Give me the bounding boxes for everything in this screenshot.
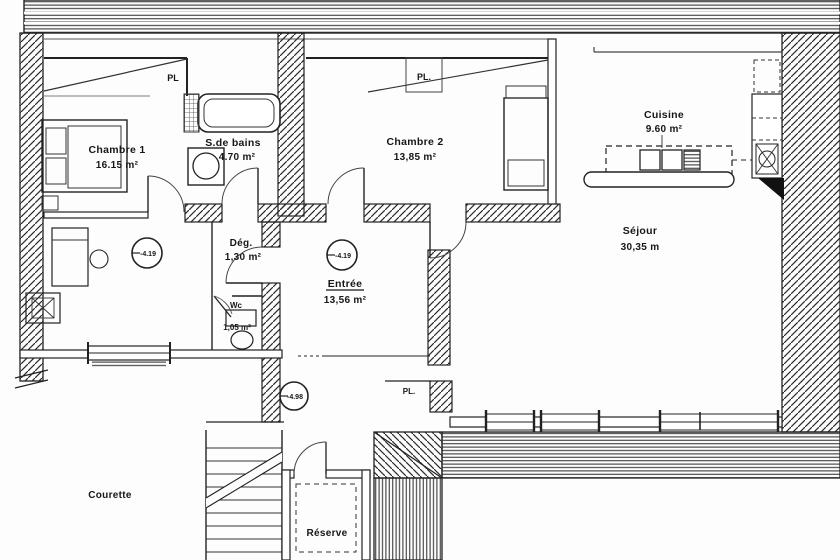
bottom-wall-band bbox=[374, 432, 840, 560]
closet-rod-line bbox=[44, 59, 187, 91]
door-chambre2 bbox=[328, 168, 364, 204]
wall-entree-sejour-stub bbox=[428, 250, 450, 365]
door-swing bbox=[328, 168, 364, 204]
room-chambre1: PL Chambre 1 16.15 m² bbox=[42, 58, 187, 212]
chambre2-area: 13,85 m² bbox=[394, 152, 437, 163]
cuisine-area: 9.60 m² bbox=[646, 124, 683, 135]
closet-chambre1: PL bbox=[44, 58, 187, 96]
wall-south-bedrooms bbox=[466, 204, 560, 222]
entree-area: 13,56 m² bbox=[324, 295, 367, 306]
kitchen-cupboard-column bbox=[752, 60, 782, 178]
room-degagement: Dég. 1,30 m² bbox=[225, 238, 262, 283]
area-courette: Courette bbox=[88, 490, 132, 501]
closet-rod-line bbox=[368, 60, 548, 92]
closet-chambre1-label: PL bbox=[167, 73, 179, 83]
closet-chambre2: PL. bbox=[306, 58, 548, 92]
level-value: -4.19 bbox=[140, 251, 156, 258]
floor-plan-svg: PL Chambre 1 16.15 m² S.de bbox=[0, 0, 840, 560]
kitchen-counter bbox=[584, 146, 754, 187]
door-sdb bbox=[222, 168, 258, 204]
door-swing bbox=[222, 168, 258, 204]
level-value: -4.19 bbox=[335, 253, 351, 260]
tiled-shelf bbox=[184, 94, 199, 132]
deg-area: 1,30 m² bbox=[225, 252, 262, 263]
bed-chambre2 bbox=[504, 86, 548, 190]
room-sejour: Séjour 30,35 m bbox=[450, 225, 782, 432]
window-sejour-3 bbox=[660, 410, 778, 432]
wall-pier bbox=[430, 381, 452, 412]
level-marker-entree-low: -4.98 bbox=[280, 382, 308, 410]
sdb-area: 4.70 m² bbox=[219, 152, 256, 163]
window-sejour-2 bbox=[541, 410, 599, 432]
reserve-dashed-outline bbox=[296, 484, 356, 552]
wall-south-bedrooms bbox=[185, 204, 222, 222]
chair bbox=[90, 250, 108, 268]
bed-pillow bbox=[46, 128, 66, 154]
stove bbox=[684, 150, 700, 170]
window-southwest bbox=[88, 342, 170, 368]
stairs bbox=[206, 430, 282, 560]
counter-bar bbox=[584, 172, 734, 187]
chambre1-area: 16.15 m² bbox=[96, 160, 139, 171]
sejour-area: 30,35 m bbox=[621, 242, 660, 253]
nightstand bbox=[506, 86, 546, 98]
floor-plan-page: PL Chambre 1 16.15 m² S.de bbox=[0, 0, 840, 560]
sink-basin bbox=[662, 150, 682, 170]
wall-south-bedrooms bbox=[258, 204, 326, 222]
nightstand bbox=[42, 196, 58, 210]
closet-entree-label: PL. bbox=[403, 387, 415, 396]
right-wall-band bbox=[782, 33, 840, 432]
band-vertical bbox=[374, 478, 442, 560]
sejour-label: Séjour bbox=[623, 225, 657, 237]
sink-basin bbox=[640, 150, 660, 170]
door-swing bbox=[148, 176, 184, 212]
wall-south-bedrooms bbox=[364, 204, 430, 222]
room-chambre2: PL. Chambre 2 13,85 m² bbox=[306, 58, 548, 204]
room-wc: Wc 1,05 m² bbox=[214, 296, 256, 349]
wall-bath-chambre2 bbox=[278, 33, 304, 216]
room-cuisine: Cuisine 9.60 m² bbox=[584, 60, 784, 200]
door-reserve bbox=[294, 442, 326, 474]
courette-label: Courette bbox=[88, 490, 132, 501]
wc-label: Wc bbox=[230, 301, 243, 310]
deg-label: Dég. bbox=[230, 238, 253, 249]
room-sdb: S.de bains 4.70 m² bbox=[184, 94, 280, 204]
closet-chambre2-label: PL. bbox=[417, 72, 431, 82]
cuisine-label: Cuisine bbox=[644, 109, 684, 121]
wall-chambre1-south bbox=[44, 212, 148, 218]
window-sill-hatch bbox=[92, 360, 166, 368]
level-value: -4.98 bbox=[287, 394, 303, 401]
sejour-south-wall bbox=[450, 410, 782, 432]
level-marker-entree-main: -4.19 bbox=[327, 240, 357, 270]
top-wall-band bbox=[24, 0, 840, 52]
room-entree: Entrée 13,56 m² PL. -4.19 -4.19 -4. bbox=[132, 222, 466, 410]
wall-chambre2-sejour bbox=[548, 39, 556, 204]
entree-label: Entrée bbox=[328, 278, 362, 290]
bathtub bbox=[198, 94, 280, 132]
chambre1-label: Chambre 1 bbox=[89, 144, 146, 156]
window-sejour-1 bbox=[486, 410, 534, 432]
band-horizontal bbox=[442, 432, 840, 478]
wall-wedge bbox=[758, 178, 784, 200]
chambre2-label: Chambre 2 bbox=[387, 136, 444, 148]
bed-pillow bbox=[46, 158, 66, 184]
stair-cut-line bbox=[206, 462, 282, 508]
level-marker-entree-left: -4.19 bbox=[132, 238, 162, 268]
closet-entree: PL. bbox=[385, 381, 430, 396]
door-chambre1 bbox=[148, 176, 184, 212]
door-swing bbox=[294, 442, 326, 474]
wall-entree-west bbox=[262, 222, 280, 247]
wc-area: 1,05 m² bbox=[223, 323, 251, 332]
sdb-label: S.de bains bbox=[205, 137, 261, 149]
desk bbox=[52, 228, 88, 286]
room-reserve: Réserve bbox=[282, 442, 370, 560]
stair-cut-line bbox=[206, 452, 282, 498]
bed-pillow bbox=[508, 160, 544, 186]
reserve-label: Réserve bbox=[306, 528, 347, 539]
bed-mattress bbox=[68, 126, 121, 188]
